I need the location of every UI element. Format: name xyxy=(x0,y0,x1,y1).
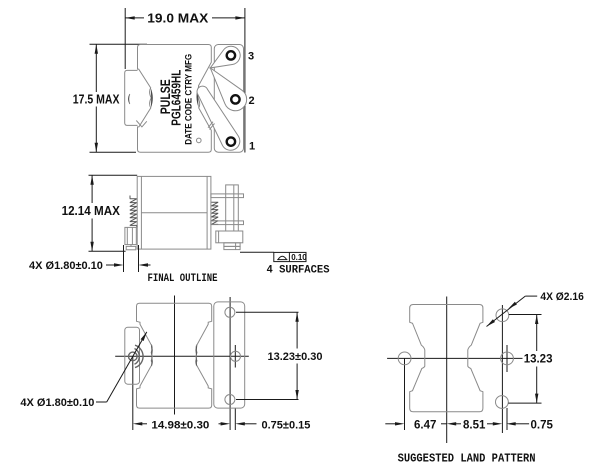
svg-text:19.0 MAX: 19.0 MAX xyxy=(147,10,208,25)
svg-text:1: 1 xyxy=(249,141,255,153)
svg-text:SUGGESTED LAND PATTERN: SUGGESTED LAND PATTERN xyxy=(398,452,536,466)
svg-text:6.47: 6.47 xyxy=(414,419,436,431)
svg-text:PGL6459HL: PGL6459HL xyxy=(169,70,184,126)
svg-text:8.51: 8.51 xyxy=(463,419,486,431)
svg-text:0.75: 0.75 xyxy=(531,419,554,431)
svg-text:2: 2 xyxy=(249,95,255,107)
svg-text:17.5 MAX: 17.5 MAX xyxy=(73,91,120,106)
svg-text:4X Ø2.16: 4X Ø2.16 xyxy=(540,291,583,303)
svg-text:12.14 MAX: 12.14 MAX xyxy=(62,203,121,218)
svg-text:14.98±0.30: 14.98±0.30 xyxy=(151,420,209,432)
svg-text:0.75±0.15: 0.75±0.15 xyxy=(262,420,311,432)
svg-text:4X Ø1.80±0.10: 4X Ø1.80±0.10 xyxy=(20,397,94,409)
svg-text:13.23: 13.23 xyxy=(524,353,553,365)
svg-text:13.23±0.30: 13.23±0.30 xyxy=(268,351,323,363)
svg-text:4X Ø1.80±0.10: 4X Ø1.80±0.10 xyxy=(29,260,103,272)
svg-text:FINAL OUTLINE: FINAL OUTLINE xyxy=(148,273,218,285)
svg-text:3: 3 xyxy=(248,51,254,63)
svg-text:4 SURFACES: 4 SURFACES xyxy=(267,265,330,277)
svg-text:DATE CODE CTRY MFG: DATE CODE CTRY MFG xyxy=(184,54,195,145)
svg-text:0.10: 0.10 xyxy=(291,253,307,262)
